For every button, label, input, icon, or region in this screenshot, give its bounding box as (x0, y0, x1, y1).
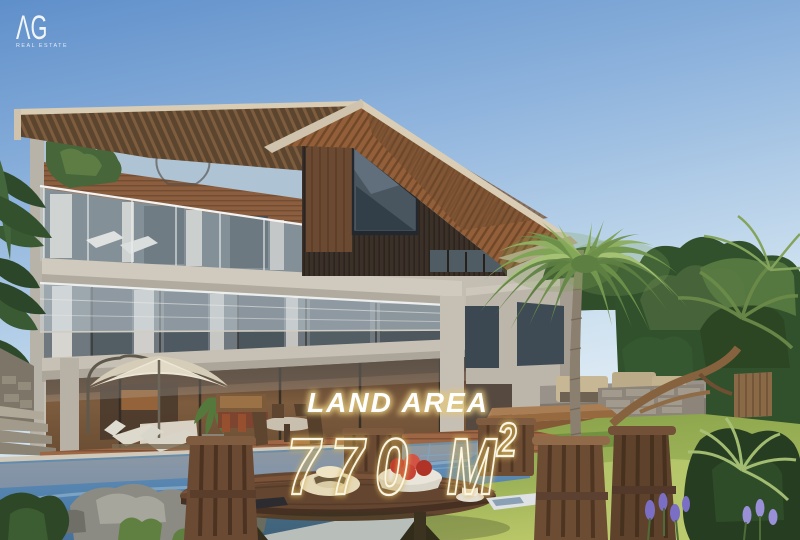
svg-text:2: 2 (496, 414, 516, 466)
svg-text:REAL ESTATE: REAL ESTATE (16, 43, 68, 49)
svg-text:ΛG: ΛG (16, 9, 47, 47)
svg-text:770 M: 770 M (287, 421, 507, 511)
svg-text:LAND AREA: LAND AREA (307, 387, 489, 418)
